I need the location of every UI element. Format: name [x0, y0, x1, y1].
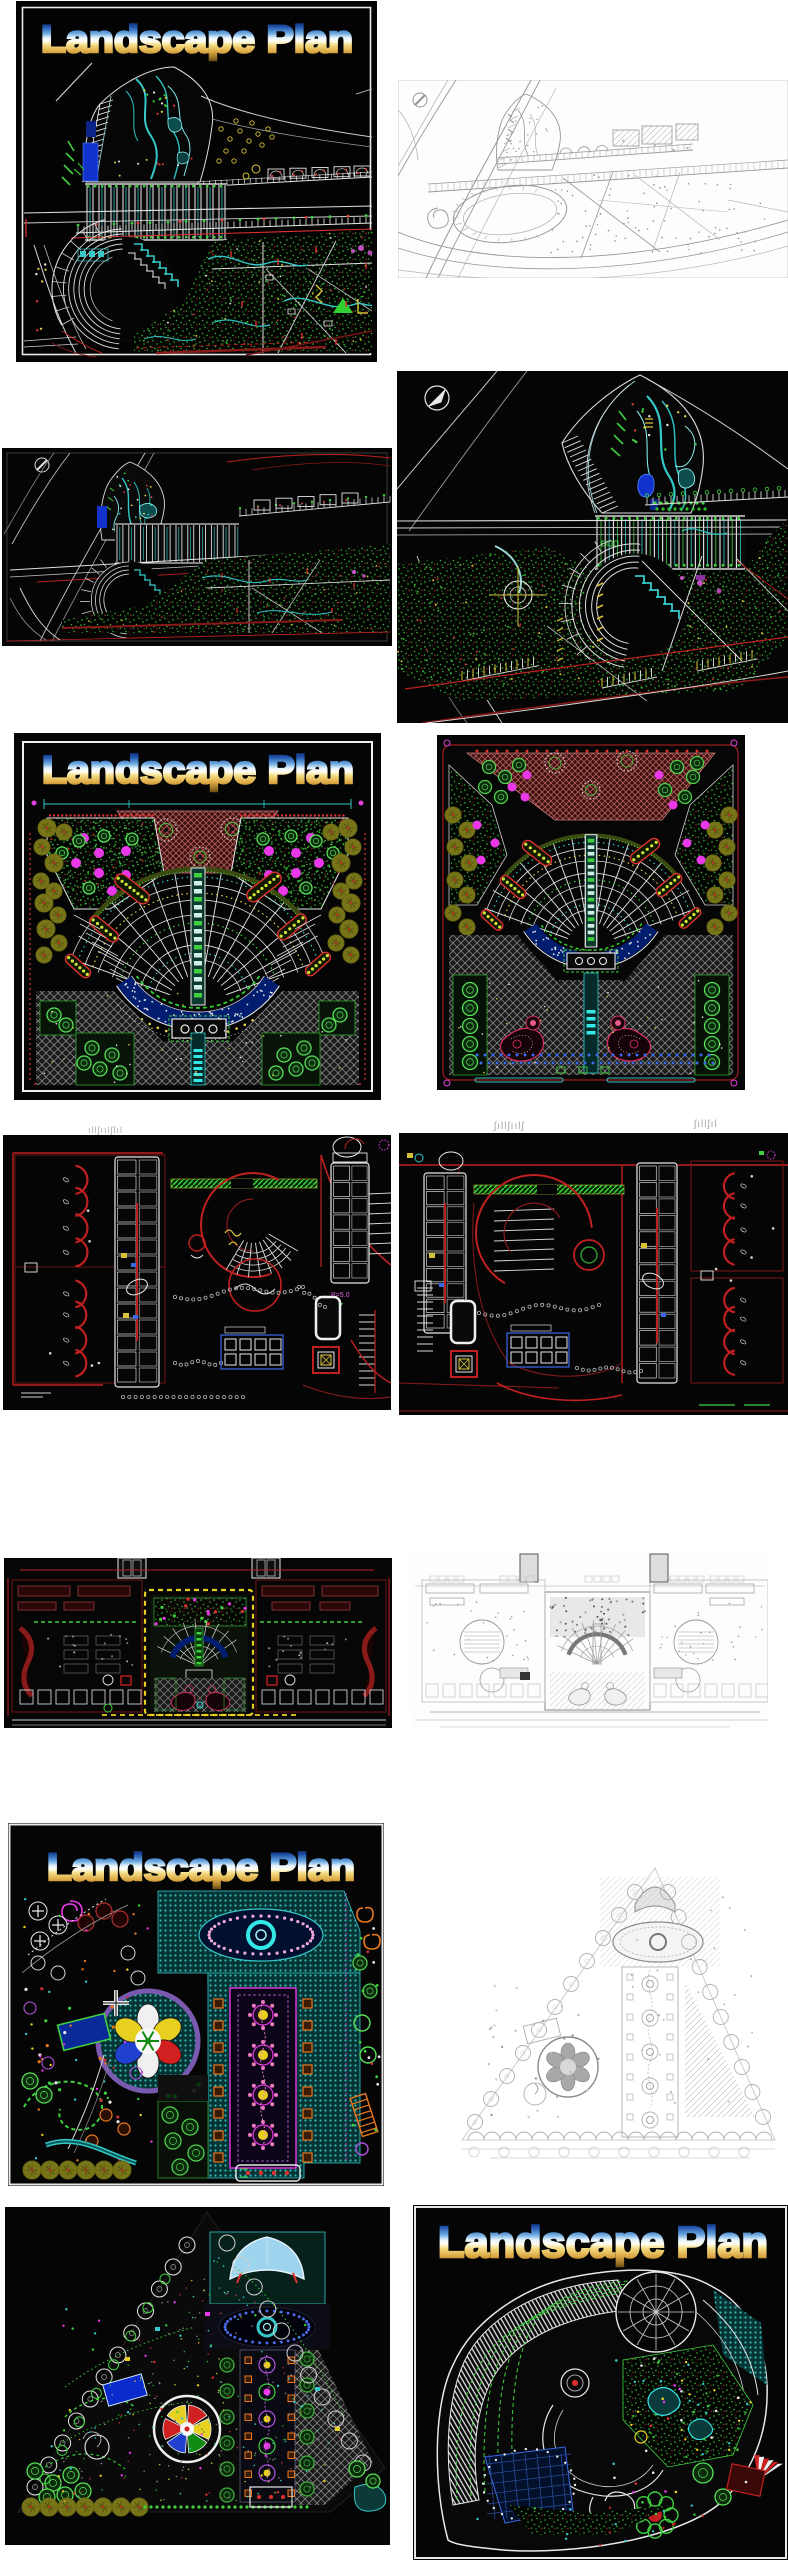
svg-text:Landscape Plan: Landscape Plan — [41, 19, 353, 61]
svg-text:Landscape Plan: Landscape Plan — [47, 1847, 355, 1889]
svg-text:Landscape Plan: Landscape Plan — [438, 2218, 768, 2267]
svg-text:Landscape Plan: Landscape Plan — [42, 749, 354, 792]
